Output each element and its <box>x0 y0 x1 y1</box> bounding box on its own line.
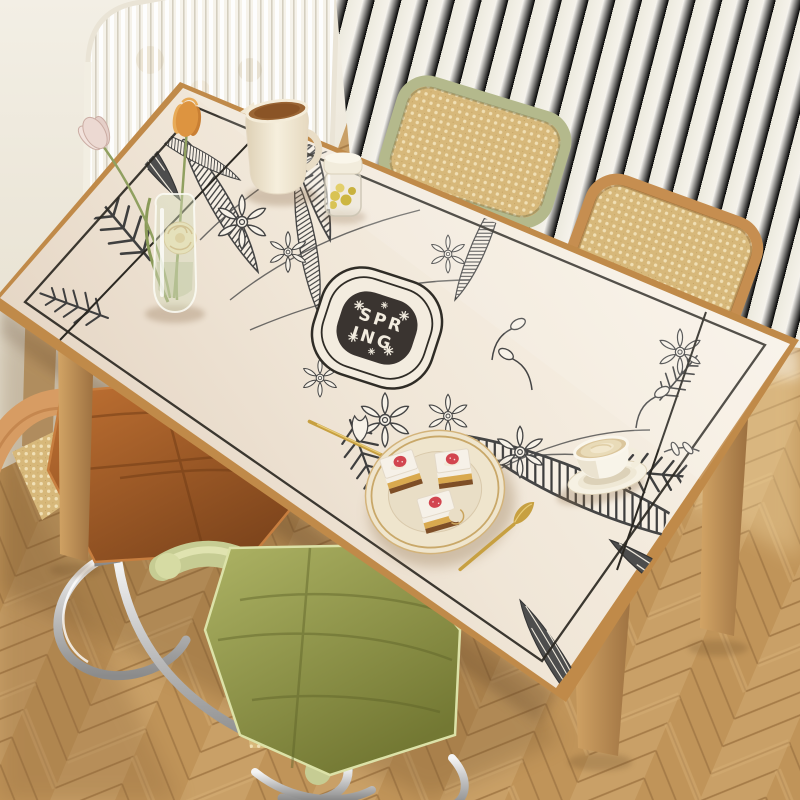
scene-canvas: SPR ING <box>0 0 800 800</box>
jar-body <box>325 170 361 216</box>
frame-end-cap <box>155 553 181 579</box>
product-photo: SPR ING <box>0 0 800 800</box>
cake-slice <box>434 449 473 489</box>
glass-candy-jar <box>322 153 366 225</box>
